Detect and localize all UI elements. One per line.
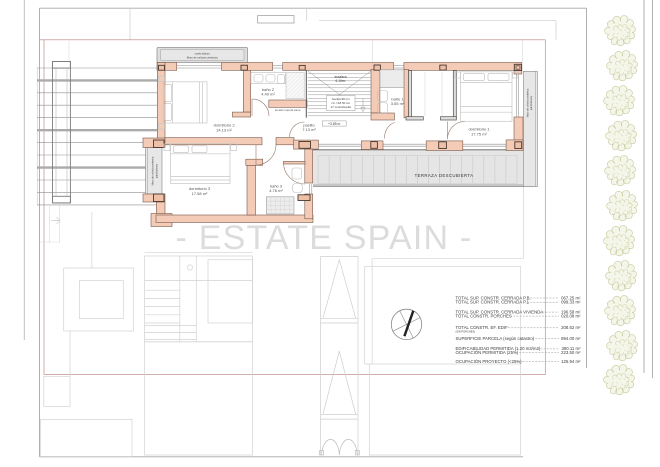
svg-text:- ESTATE SPAIN -: - ESTATE SPAIN - <box>176 219 473 257</box>
svg-text:099.33 m²: 099.33 m² <box>561 300 581 305</box>
svg-text:TOTAL SUP. CONSTR. CERRADA P.1: TOTAL SUP. CONSTR. CERRADA P.1 <box>456 300 530 305</box>
svg-text:SUPERFICIE PARCELA (según cata: SUPERFICIE PARCELA (según catastro) <box>456 336 535 341</box>
svg-text:17 contrahuella: 17 contrahuella <box>330 105 351 109</box>
svg-text:3.55 m²: 3.55 m² <box>391 101 405 106</box>
svg-text:para balcony: para balcony <box>156 163 159 178</box>
svg-text:125.94 m²: 125.94 m² <box>561 359 581 364</box>
svg-text:Muro de celosía cerámica: Muro de celosía cerámica <box>152 156 155 185</box>
svg-text:Muro de celosía cerámica: Muro de celosía cerámica <box>187 55 218 59</box>
svg-text:TOTAL CONSTR. PORCHES: TOTAL CONSTR. PORCHES <box>456 313 512 318</box>
svg-text:4.40 m²: 4.40 m² <box>261 92 275 97</box>
svg-text:+3.85 m: +3.85 m <box>328 122 341 126</box>
svg-text:6.16m²: 6.16m² <box>336 79 346 83</box>
svg-text:OCUPACIÓN PERMITIDA (25%): OCUPACIÓN PERMITIDA (25%) <box>456 350 519 355</box>
svg-text:020.08 m²: 020.08 m² <box>561 313 581 318</box>
svg-text:17.58 m²: 17.58 m² <box>192 191 208 196</box>
svg-text:894.00 m²: 894.00 m² <box>561 336 581 341</box>
svg-text:208.62 m²: 208.62 m² <box>561 325 581 330</box>
svg-text:TERRAZA DESCUBIERTA: TERRAZA DESCUBIERTA <box>415 173 474 178</box>
svg-text:TOTAL CONSTR. EF. EDIF: TOTAL CONSTR. EF. EDIF <box>456 325 509 330</box>
svg-text:17.75 m²: 17.75 m² <box>471 131 487 136</box>
svg-text:4.76 m²: 4.76 m² <box>269 188 283 193</box>
svg-text:armario ropa de cama: armario ropa de cama <box>275 108 301 112</box>
svg-text:(SIN PORCHES): (SIN PORCHES) <box>456 330 476 334</box>
svg-text:14.13 m²: 14.13 m² <box>216 127 232 132</box>
svg-text:para balcony: para balcony <box>530 95 533 110</box>
svg-text:223.50 m²: 223.50 m² <box>561 350 581 355</box>
svg-text:OCUPACIÓN PROYECTO (<25%): OCUPACIÓN PROYECTO (<25%) <box>456 359 523 364</box>
svg-text:7.13 m²: 7.13 m² <box>302 127 316 132</box>
svg-text:vuelo balcón: vuelo balcón <box>195 52 211 56</box>
